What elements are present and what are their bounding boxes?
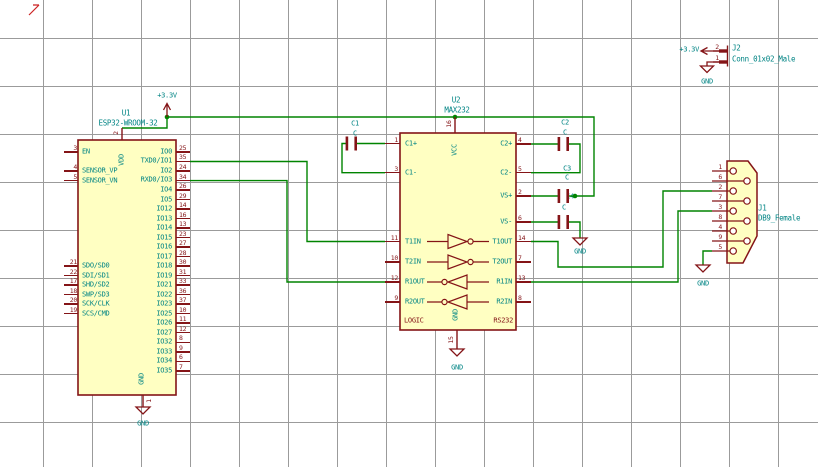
c3-symbol — [558, 189, 569, 203]
pin-row[interactable]: 13 R1IN — [516, 277, 531, 287]
pin-row[interactable]: 6 VS- — [516, 217, 531, 227]
pin-stub — [176, 265, 190, 267]
pin-name: C2+ — [500, 141, 512, 148]
pin-stub — [176, 237, 190, 239]
j1-value[interactable]: DB9_Female — [758, 214, 800, 222]
j2-gnd-symbol — [701, 66, 714, 73]
c2-value[interactable]: C — [563, 130, 567, 137]
pin-name: IO17 — [156, 253, 172, 260]
pin-name: VS- — [500, 219, 512, 226]
pin-name: IO22 — [156, 291, 172, 298]
pin-number: 1 — [718, 164, 722, 171]
pin-stub — [176, 199, 190, 201]
u2-vcc-pin-number: 16 — [446, 120, 453, 127]
pin-stub — [176, 294, 190, 296]
u2-reference[interactable]: U2 — [452, 96, 460, 104]
pin-stub — [64, 303, 78, 305]
pin-stub — [385, 261, 400, 263]
pin-number: 5 — [718, 244, 722, 251]
c3-value[interactable]: C — [565, 175, 569, 182]
pin-name: C2- — [500, 169, 512, 176]
u1-3v3-label[interactable]: +3.3V — [157, 93, 177, 100]
pin-number: 3 — [718, 204, 722, 211]
c4-gnd-symbol — [573, 238, 587, 245]
pin-stub — [176, 218, 190, 220]
pin-name: C1- — [405, 169, 417, 176]
pin-name: IO5 — [160, 196, 172, 203]
c4-symbol — [558, 215, 569, 229]
c1-reference[interactable]: C1 — [351, 121, 359, 128]
pin-stub — [176, 256, 190, 258]
pin-name: SENSOR_VN — [82, 177, 117, 184]
pin-stub — [64, 294, 78, 296]
pin-name: IO2 — [160, 167, 172, 174]
j1-pin-numbers: 1 6 2 7 3 8 4 9 5 — [710, 164, 722, 254]
pin-row[interactable]: 9 R2OUT — [385, 297, 400, 307]
schematic-canvas[interactable]: U1 ESP32-WROOM-32 +3.3V 2 VDD GND 1 GND … — [0, 0, 818, 467]
pin-name: SWP/SD3 — [82, 291, 109, 298]
pin-stub — [176, 246, 190, 248]
pin-stub — [516, 241, 531, 243]
pin-name: SHD/SD2 — [82, 282, 109, 289]
u1-gnd-label[interactable]: GND — [137, 421, 149, 428]
pin-name: IO26 — [156, 320, 172, 327]
pin-stub — [176, 370, 190, 372]
pin-stub — [176, 161, 190, 163]
wire-c1-to-c1minus — [342, 144, 385, 173]
pin-name: RXD0/IO3 — [141, 177, 172, 184]
u2-sub-label-rs232: RS232 — [493, 318, 513, 325]
pin-number: 8 — [718, 214, 722, 221]
pin-stub — [385, 143, 400, 145]
pin-row[interactable]: 7 T2OUT — [516, 257, 531, 267]
c1-value[interactable]: C — [353, 131, 357, 138]
sheet-corner-mark — [29, 5, 39, 15]
pin-stub — [176, 303, 190, 305]
pin-name: T1IN — [405, 238, 421, 245]
pin-row[interactable]: 8 R2IN — [516, 297, 531, 307]
pin-number: 9 — [718, 234, 722, 241]
pin-name: SCK/CLK — [82, 301, 109, 308]
pin-name: IO25 — [156, 310, 172, 317]
pin-name: VS+ — [500, 193, 512, 200]
pin-row[interactable]: 12 R1OUT — [385, 277, 400, 287]
pin-row[interactable]: 19 SCS/CMD — [64, 309, 78, 319]
pin-stub — [176, 313, 190, 315]
pin-stub — [176, 322, 190, 324]
pin-name: IO19 — [156, 272, 172, 279]
pin-row[interactable]: 4 C2+ — [516, 139, 531, 149]
pin-row[interactable]: 7 IO35 — [176, 366, 190, 376]
pin-name: IO0 — [160, 148, 172, 155]
j2-pin2-number: 2 — [715, 44, 719, 51]
pin-stub — [64, 313, 78, 315]
pin-stub — [176, 170, 190, 172]
pin-name: IO32 — [156, 339, 172, 346]
pin-name: IO14 — [156, 225, 172, 232]
pin-name: R2OUT — [405, 299, 425, 306]
u1-vdd-pin-number: 2 — [113, 131, 120, 135]
c4-value[interactable]: C — [562, 205, 566, 212]
j2-3v3-symbol — [701, 48, 713, 55]
pin-number: 2 — [718, 184, 722, 191]
u1-3v3-symbol — [164, 104, 171, 118]
pin-name: IO27 — [156, 329, 172, 336]
pin-name: IO18 — [156, 263, 172, 270]
pin-stub — [516, 301, 531, 303]
u2-gnd-pin-name: GND — [453, 309, 460, 321]
pin-name: IO21 — [156, 282, 172, 289]
pin-row[interactable]: 5 — [710, 244, 722, 254]
u1-gnd-pin-number: 1 — [146, 399, 153, 403]
u1-gnd-symbol — [136, 407, 150, 414]
pin-name: R2IN — [496, 299, 512, 306]
pin-stub — [64, 265, 78, 267]
pin-stub — [176, 180, 190, 182]
u1-right-pins: 25 IO0 35 TXD0/IO1 24 IO2 34 RXD0/IO3 26… — [176, 147, 190, 375]
pin-name: T2OUT — [492, 259, 512, 266]
wire-rxd0-r1out — [190, 181, 385, 282]
pin-name: T1OUT — [492, 238, 512, 245]
u1-left-bottom-pins: 21 SDO/SD0 22 SDI/SD1 17 SHD/SD2 18 SWP/… — [64, 261, 78, 318]
pin-name: T2IN — [405, 259, 421, 266]
pin-number: 7 — [718, 194, 722, 201]
pin-stub — [64, 275, 78, 277]
pin-name: TXD0/IO1 — [141, 158, 172, 165]
u2-gnd-pin-number: 15 — [448, 336, 455, 343]
pin-stub — [64, 170, 78, 172]
pin-name: R1OUT — [405, 279, 425, 286]
pin-number: 6 — [718, 174, 722, 181]
u1-gnd-pin-name: GND — [139, 373, 146, 385]
schematic-graphics — [0, 0, 818, 467]
pin-stub — [176, 151, 190, 153]
pin-number: 4 — [718, 224, 722, 231]
pin-name: SCS/CMD — [82, 310, 109, 317]
u2-sub-label-logic: LOGIC — [404, 318, 424, 325]
pin-name: IO16 — [156, 244, 172, 251]
pin-stub — [176, 342, 190, 344]
c3-reference[interactable]: C3 — [563, 166, 571, 173]
pin-stub — [516, 172, 531, 174]
pin-stub — [64, 180, 78, 182]
pin-name: IO34 — [156, 358, 172, 365]
pin-row[interactable]: 3 C1- — [385, 168, 400, 178]
j2-reference[interactable]: J2 — [732, 44, 740, 52]
pin-stub — [176, 208, 190, 210]
c1-symbol — [346, 137, 357, 151]
pin-name: IO4 — [160, 187, 172, 194]
pin-stub — [385, 281, 400, 283]
pin-stub — [516, 261, 531, 263]
j1-gnd-label[interactable]: GND — [697, 281, 709, 288]
u2-gnd-label[interactable]: GND — [451, 365, 463, 372]
j2-3v3-label[interactable]: +3.3V — [679, 47, 699, 54]
pin-stub — [176, 361, 190, 363]
pin-stub — [176, 351, 190, 353]
wire-3v3-rail — [167, 117, 594, 196]
c2-symbol — [558, 137, 569, 151]
pin-stub — [516, 221, 531, 223]
pin-stub — [64, 284, 78, 286]
pin-stub — [516, 143, 531, 145]
c2-reference[interactable]: C2 — [561, 120, 569, 127]
j2-value[interactable]: Conn_01x02_Male — [732, 55, 795, 63]
j1-reference[interactable]: J1 — [758, 204, 766, 212]
pin-stub — [176, 227, 190, 229]
pin-name: EN — [82, 148, 90, 155]
pin-stub — [516, 281, 531, 283]
pin-row[interactable]: 1 C1+ — [385, 139, 400, 149]
pin-stub — [516, 195, 531, 197]
pin-stub — [385, 241, 400, 243]
wire-c2-c2minus — [531, 144, 580, 173]
pin-name: SDO/SD0 — [82, 263, 109, 270]
u2-vcc-pin-name: VCC — [452, 144, 459, 156]
pin-stub — [176, 275, 190, 277]
u2-value[interactable]: MAX232 — [444, 106, 469, 114]
wire-c4-gnd — [569, 222, 580, 238]
pin-name: IO15 — [156, 234, 172, 241]
pin-name: IO35 — [156, 367, 172, 374]
junction-dot — [573, 194, 578, 199]
j2-gnd-label[interactable]: GND — [701, 79, 713, 86]
u1-value[interactable]: ESP32-WROOM-32 — [98, 119, 157, 127]
pin-name: IO13 — [156, 215, 172, 222]
pin-row[interactable]: 5 C2- — [516, 168, 531, 178]
pin-row[interactable]: 14 T1OUT — [516, 237, 531, 247]
pin-name: R1IN — [496, 279, 512, 286]
pin-name: SENSOR_VP — [82, 167, 117, 174]
pin-name: IO33 — [156, 348, 172, 355]
pin-name: IO12 — [156, 206, 172, 213]
u1-reference[interactable]: U1 — [122, 109, 130, 117]
u1-vdd-pin-name: VDD — [119, 154, 126, 166]
pin-stub — [176, 189, 190, 191]
pin-row[interactable]: 2 VS+ — [516, 191, 531, 201]
u2-gnd-symbol — [450, 349, 464, 356]
pin-row[interactable]: 5 SENSOR_VN — [64, 176, 78, 186]
pin-stub — [176, 284, 190, 286]
pin-name: SDI/SD1 — [82, 272, 109, 279]
pin-stub — [385, 172, 400, 174]
j2-pin1-number: 1 — [715, 55, 719, 62]
pin-name: IO23 — [156, 301, 172, 308]
j1-gnd-symbol — [696, 265, 710, 272]
pin-stub — [385, 301, 400, 303]
pin-stub — [176, 332, 190, 334]
pin-row[interactable]: 10 T2IN — [385, 257, 400, 267]
pin-stub — [64, 151, 78, 153]
pin-name: C1+ — [405, 140, 417, 147]
pin-row[interactable]: 11 T1IN — [385, 237, 400, 247]
c4-gnd-label[interactable]: GND — [574, 249, 586, 256]
pin-row[interactable]: 3 EN — [64, 147, 78, 157]
